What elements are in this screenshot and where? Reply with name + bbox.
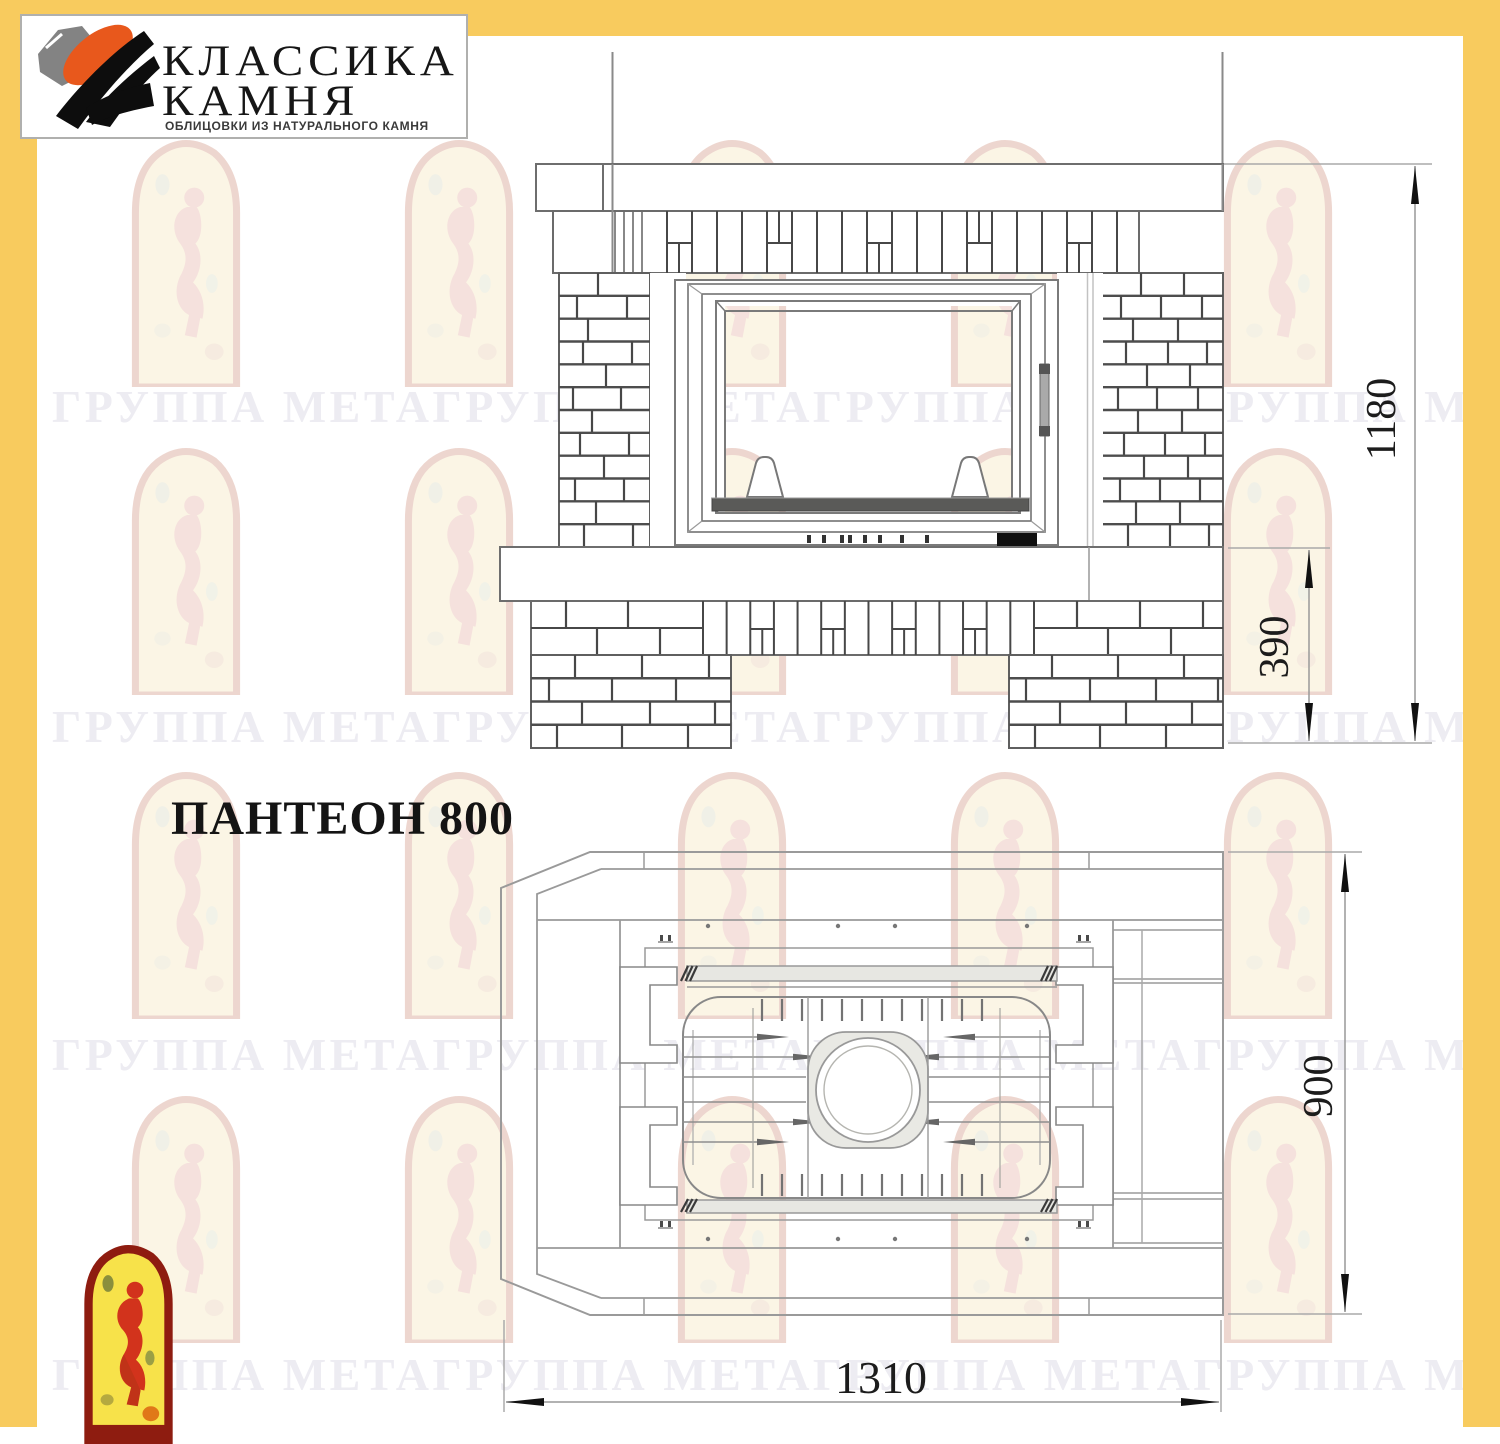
svg-text:390: 390 [1252, 616, 1298, 679]
svg-text:1310: 1310 [835, 1352, 927, 1403]
svg-text:1180: 1180 [1359, 378, 1405, 460]
svg-text:900: 900 [1296, 1055, 1342, 1118]
